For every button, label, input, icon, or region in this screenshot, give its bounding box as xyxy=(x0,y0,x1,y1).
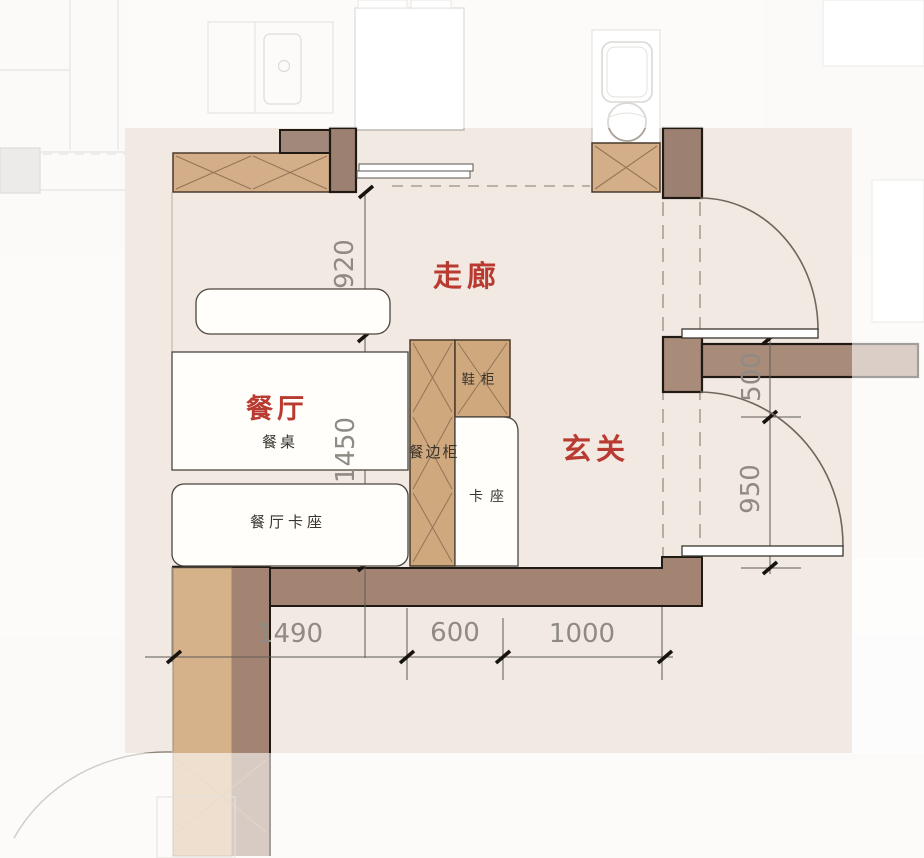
room-label-entry: 玄关 xyxy=(562,432,630,466)
dim-950: 950 xyxy=(736,464,766,514)
dim-500: 500 xyxy=(737,352,767,402)
dim-920: 920 xyxy=(330,239,360,289)
room-label-dining: 餐厅 xyxy=(246,394,308,425)
label-dining-table: 餐桌 xyxy=(262,433,298,451)
door-leaf xyxy=(682,329,818,338)
sliding-door xyxy=(357,164,473,178)
wall-500-left xyxy=(663,337,702,392)
label-sideboard: 餐边柜 xyxy=(408,443,459,461)
dim-1000: 1000 xyxy=(549,619,615,649)
dim-600: 600 xyxy=(430,618,480,648)
wall-entry-pillar xyxy=(663,128,702,198)
door-leaf xyxy=(682,546,843,556)
corridor-bench xyxy=(196,289,390,334)
wall-toilet-hatched xyxy=(592,143,660,192)
dim-1450: 1450 xyxy=(331,417,361,483)
wall-pillar-small xyxy=(280,130,330,153)
wall-pillar xyxy=(330,128,356,192)
label-dining-booth: 餐厅卡座 xyxy=(250,513,326,531)
label-shoe-cabinet: 鞋柜 xyxy=(462,372,501,388)
dim-1490: 1490 xyxy=(257,619,323,649)
wall-top-hatched xyxy=(173,153,330,192)
label-booth: 卡座 xyxy=(469,489,511,505)
floor-plan-screenshot: 走廊 餐厅 玄关 餐桌 餐厅卡座 餐边柜 鞋柜 卡座 920 1450 500 … xyxy=(0,0,924,858)
floor-plan-canvas: 走廊 餐厅 玄关 餐桌 餐厅卡座 餐边柜 鞋柜 卡座 920 1450 500 … xyxy=(0,0,924,858)
room-label-corridor: 走廊 xyxy=(433,259,501,293)
